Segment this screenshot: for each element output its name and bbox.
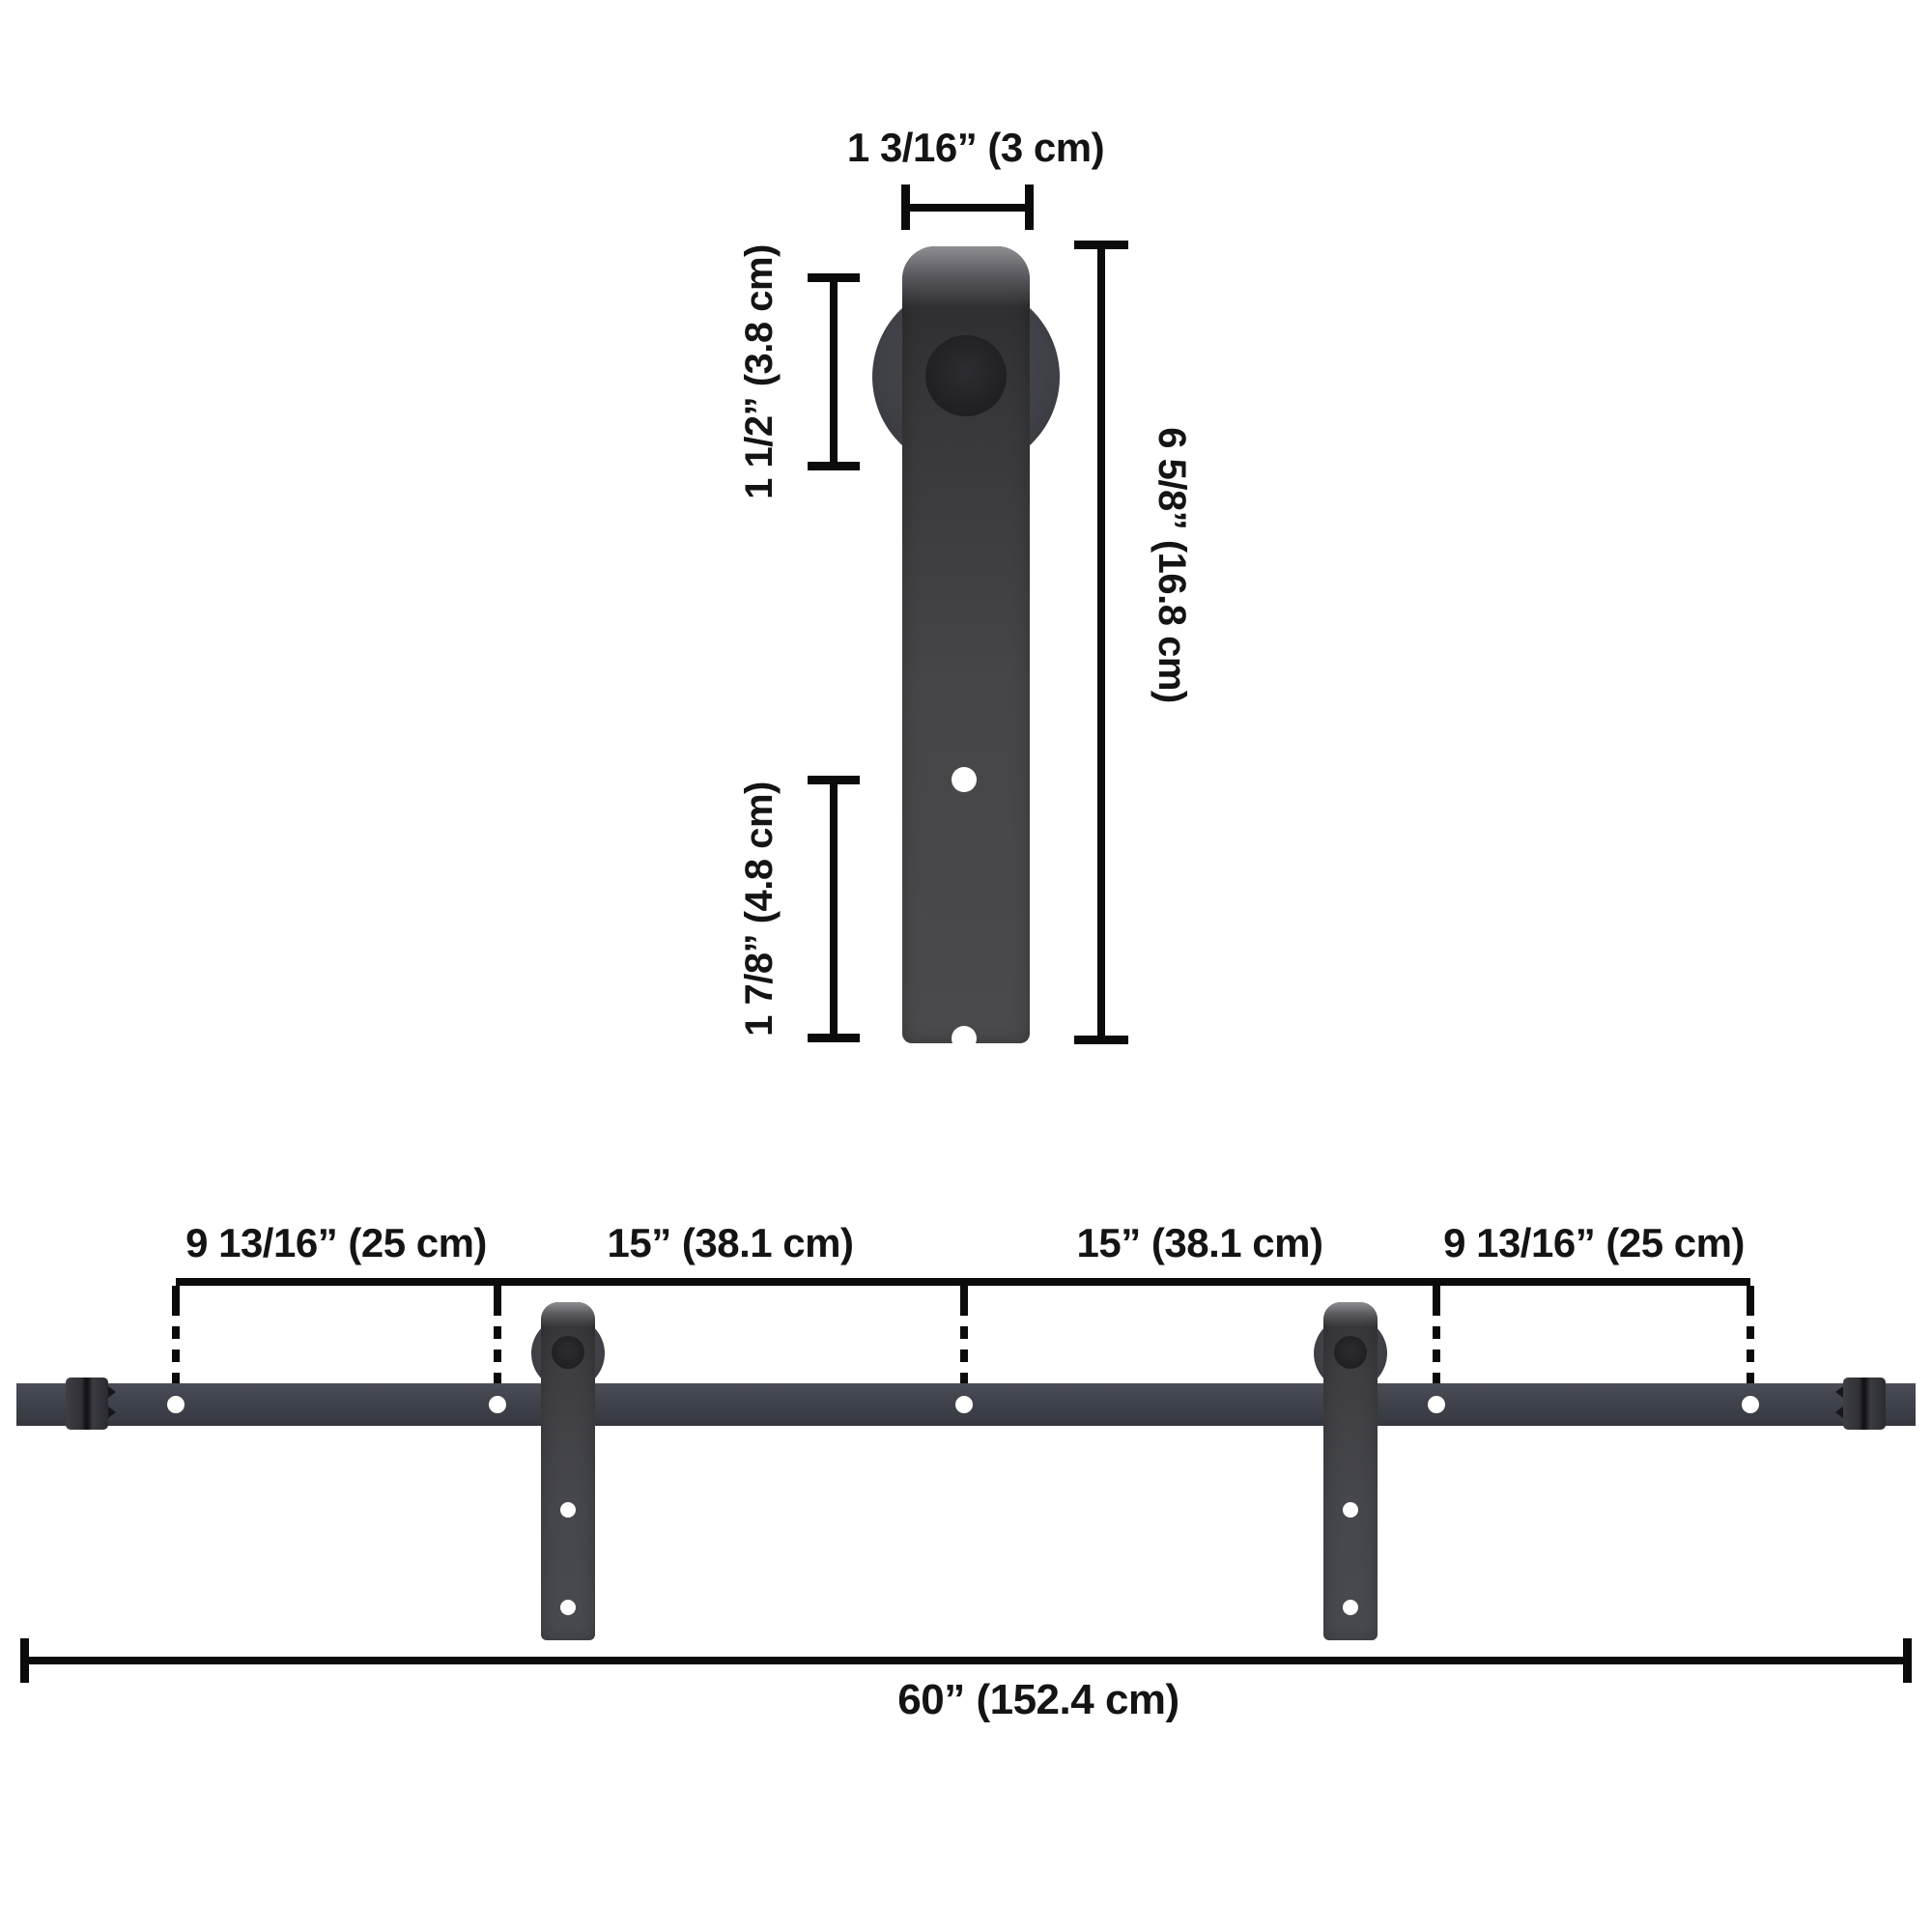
section-label-2: 15” (38.1 cm) [527,1219,933,1267]
left-hanger-hub-cap [552,1336,584,1369]
total-length-label: 60” (152.4 cm) [836,1676,1241,1724]
rail-hole-2-front [489,1396,506,1413]
left-end-stop-screw-top [108,1386,116,1398]
dropline-tick-3 [960,1286,968,1303]
dropline-tick-1 [172,1286,180,1303]
rail-hole-4-front [1428,1396,1445,1413]
right-end-stop-screw-top [1835,1386,1843,1398]
section-label-1: 9 13/16” (25 cm) [133,1219,539,1267]
dropline-tick-4 [1433,1286,1440,1303]
rail-hole-1-front [167,1396,185,1413]
dropline-dash-2 [494,1303,501,1396]
right-end-stop-screw-bottom [1835,1406,1843,1418]
dropline-dash-3 [960,1303,968,1396]
right-strap-curl-highlight [1323,1302,1378,1327]
total-dim-line [24,1657,1908,1664]
left-strap-hole-upper [560,1502,576,1518]
right-hanger-hub-cap [1334,1336,1367,1369]
diagram-canvas: 1 3/16” (3 cm) 1 1/2” (3.8 cm) 1 7/8” (4… [0,0,1932,1932]
dropline-dash-5 [1747,1303,1754,1396]
dropline-dash-1 [172,1303,180,1396]
right-strap-hole-upper [1343,1502,1358,1518]
dropline-tick-5 [1747,1286,1754,1303]
section-label-3: 15” (38.1 cm) [997,1219,1403,1267]
rail-hole-5-front [1742,1396,1759,1413]
rail-assembly-view: 9 13/16” (25 cm) 15” (38.1 cm) 15” (38.1… [0,0,1932,1932]
section-dim-line [176,1278,1750,1286]
section-label-4: 9 13/16” (25 cm) [1391,1219,1797,1267]
left-strap-curl-highlight [541,1302,595,1327]
rail-hole-3-front [955,1396,973,1413]
left-end-stop [66,1378,108,1430]
right-strap-hole-lower [1343,1600,1358,1615]
right-end-stop [1843,1378,1886,1430]
left-strap-hole-lower [560,1600,576,1615]
dropline-tick-2 [494,1286,501,1303]
dropline-dash-4 [1433,1303,1440,1396]
left-end-stop-screw-bottom [108,1406,116,1418]
